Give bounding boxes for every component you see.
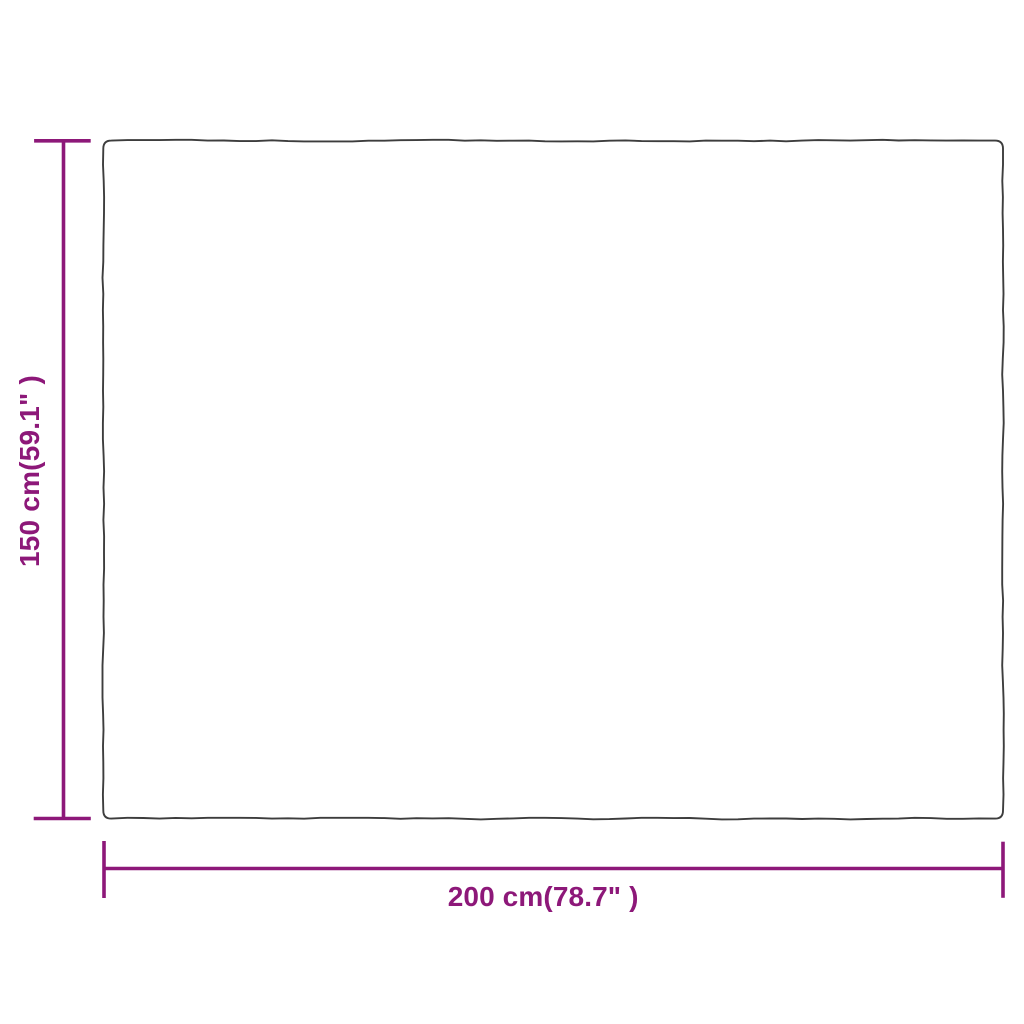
svg-text:150 cm(59.1" ): 150 cm(59.1" ) (14, 375, 45, 567)
svg-text:200 cm(78.7" ): 200 cm(78.7" ) (448, 881, 639, 912)
